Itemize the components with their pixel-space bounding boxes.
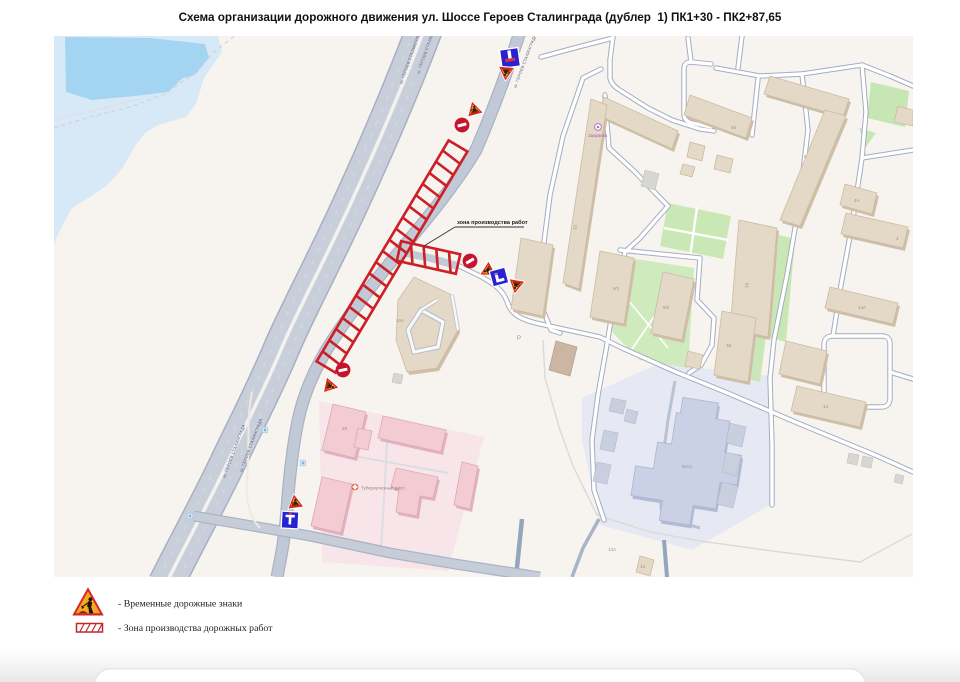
svg-text:- Зона производства дорожных р: - Зона производства дорожных работ xyxy=(118,623,273,634)
svg-text:4А: 4А xyxy=(854,198,860,203)
svg-text:46: 46 xyxy=(731,125,737,130)
svg-text:10А: 10А xyxy=(396,318,404,323)
svg-text:25: 25 xyxy=(342,426,348,431)
svg-text:Туберкулезный дисп.: Туберкулезный дисп. xyxy=(361,485,406,491)
svg-text:8/2: 8/2 xyxy=(663,305,670,310)
svg-text:1Б: 1Б xyxy=(726,343,732,348)
svg-text:8/1: 8/1 xyxy=(613,286,620,291)
svg-text:Р: Р xyxy=(517,336,521,342)
svg-text:13: 13 xyxy=(640,564,646,569)
svg-text:14: 14 xyxy=(823,404,829,409)
svg-text:14А: 14А xyxy=(858,305,866,310)
svg-text:- Временные дорожные знаки: - Временные дорожные знаки xyxy=(118,599,243,610)
svg-text:Заправка: Заправка xyxy=(588,133,608,138)
svg-text:8Ас1: 8Ас1 xyxy=(682,464,693,469)
svg-text:зона производства работ: зона производства работ xyxy=(457,219,528,226)
svg-text:13А: 13А xyxy=(608,547,616,552)
